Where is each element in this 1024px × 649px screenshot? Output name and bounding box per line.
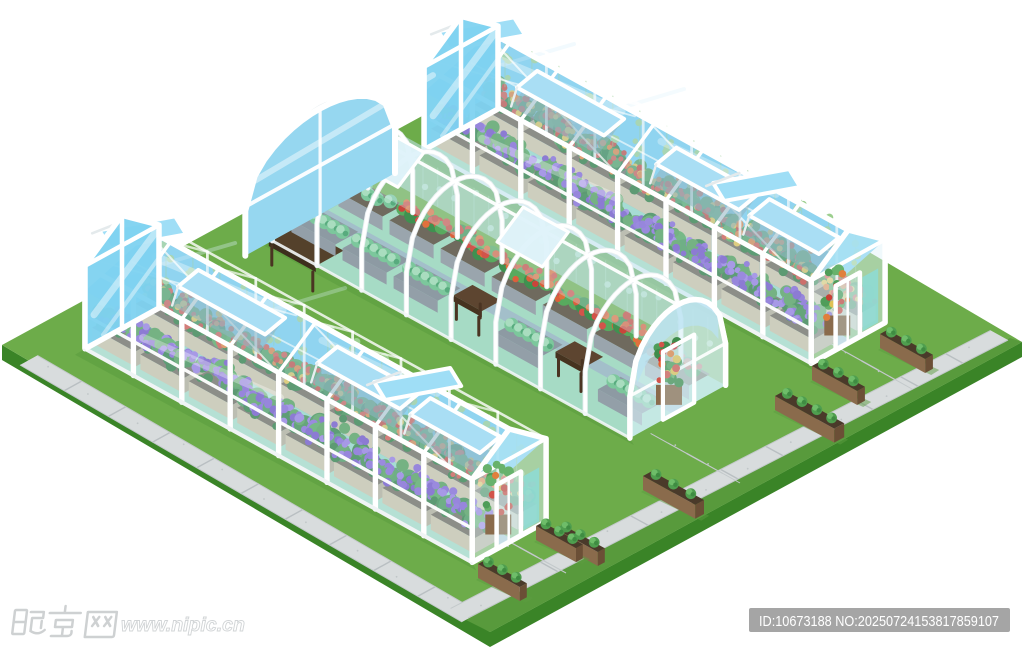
svg-text:www.nipic.cn: www.nipic.cn — [121, 614, 245, 636]
svg-text:ID:10673188 NO:202507241538178: ID:10673188 NO:20250724153817859107 — [759, 613, 999, 630]
